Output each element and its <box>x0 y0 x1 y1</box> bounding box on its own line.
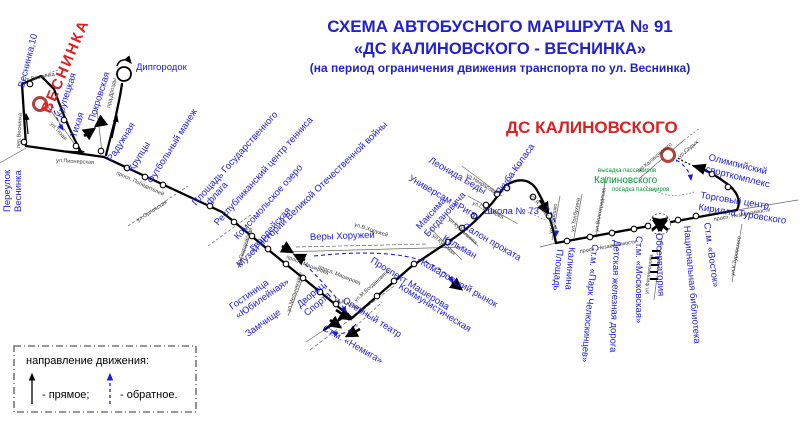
title-line2: «ДС КАЛИНОВСКОГО - ВЕСНИНКА» <box>354 40 646 58</box>
legend-forward-label: - прямое; <box>42 389 89 401</box>
board-label: посадка пассажиров <box>612 187 669 193</box>
stop-label-vostok: Ст.м. «Восток» <box>701 222 721 288</box>
street-label-pionerskaya: ул.Пионерская <box>56 158 94 166</box>
stop-label-biblioteka: Национальная библиотека <box>681 225 702 345</box>
stop-label-muzey: Музей истории Великой Отечественной войн… <box>234 119 390 270</box>
legend: направление движения: - прямое; - обратн… <box>14 346 196 412</box>
dipgorodok-loop <box>117 67 131 81</box>
stop-label-very-horuzhey: Веры Хоружей <box>310 230 375 243</box>
street-label-sedyh: ул.Седых <box>677 139 700 159</box>
stop-label-prospekt-masherova: Проспект Машерова <box>368 255 451 313</box>
svg-text:Переулок: Переулок <box>2 169 13 212</box>
street-label-tolbuhina: ул.Толбухина <box>570 197 582 233</box>
interchange-icon <box>650 214 671 235</box>
street-label-tihaya: ул.Тихая <box>49 121 68 142</box>
drop-off-label: высадка пассажиров <box>598 168 656 174</box>
stop-label-futbolny: Футбольный манеж <box>145 106 200 185</box>
legend-heading: направление движения: <box>26 355 149 367</box>
street-label-nezavisimosti1: просп. Независимости <box>579 239 637 255</box>
stop-label-detskaya: Детская железная дорога <box>607 240 622 353</box>
route-map: СХЕМА АВТОБУСНОГО МАРШРУТА № 91 «ДС КАЛИ… <box>0 0 800 424</box>
title-line3: (на период ограничения движения транспор… <box>310 61 690 75</box>
route-lines <box>22 60 739 330</box>
street-label-filimonova: ул.Филимонова <box>644 253 655 294</box>
street-label-masherova2: просп. Машерова <box>317 264 362 287</box>
stop-label-dvorets: Дворец Спорта <box>295 281 335 319</box>
svg-text:Веснинка: Веснинка <box>13 169 24 212</box>
stop-markers <box>21 81 731 307</box>
street-label-turovskogo: ул.К.Туровского <box>730 236 743 276</box>
street-label-kedyshko: ул.Кедышко <box>548 203 559 234</box>
stop-label-olimpiysky: Олимпийский спорткомплекс <box>704 152 774 190</box>
legend-reverse-label: - обратное. <box>120 389 178 401</box>
stop-label-per-vesninka: Переулок Веснинка <box>2 169 24 212</box>
stop-label-kalinina: Площадь Калинина <box>550 247 577 291</box>
stop-label-kruptsy: Крупцы <box>126 140 153 174</box>
stop-label-chelyuskintsev: Ст.м. «Парк Челюскинцев» <box>579 244 600 363</box>
terminal-label-kalinovskogo: ДС КАЛИНОВСКОГО <box>506 118 678 137</box>
stop-label-moskovskaya: Ст.м. «Московская» <box>633 236 644 323</box>
street-lines <box>0 70 798 350</box>
stop-label-yubileynaya: Гостиница «Юбилейная» <box>227 267 291 321</box>
title-line1: СХЕМА АВТОБУСНОГО МАРШРУТА № 91 <box>327 17 673 36</box>
stop-label-dipgorodok: Дипгородок <box>136 62 188 73</box>
stop-label-kolas: Якуба Коласа <box>493 141 537 198</box>
street-label-orlovskaya: ул.Орловская <box>136 200 169 224</box>
street-label-volgogradskaya: ул.Волгоградская <box>594 187 608 232</box>
stop-label-observatoriya: Обсерватория <box>653 233 666 297</box>
map-title: СХЕМА АВТОБУСНОГО МАРШРУТА № 91 «ДС КАЛИ… <box>310 17 690 75</box>
route-map-page: СХЕМА АВТОБУСНОГО МАРШРУТА № 91 «ДС КАЛИ… <box>0 0 800 424</box>
stop-label-kalinovskogo-green: Калиновского <box>594 175 658 186</box>
